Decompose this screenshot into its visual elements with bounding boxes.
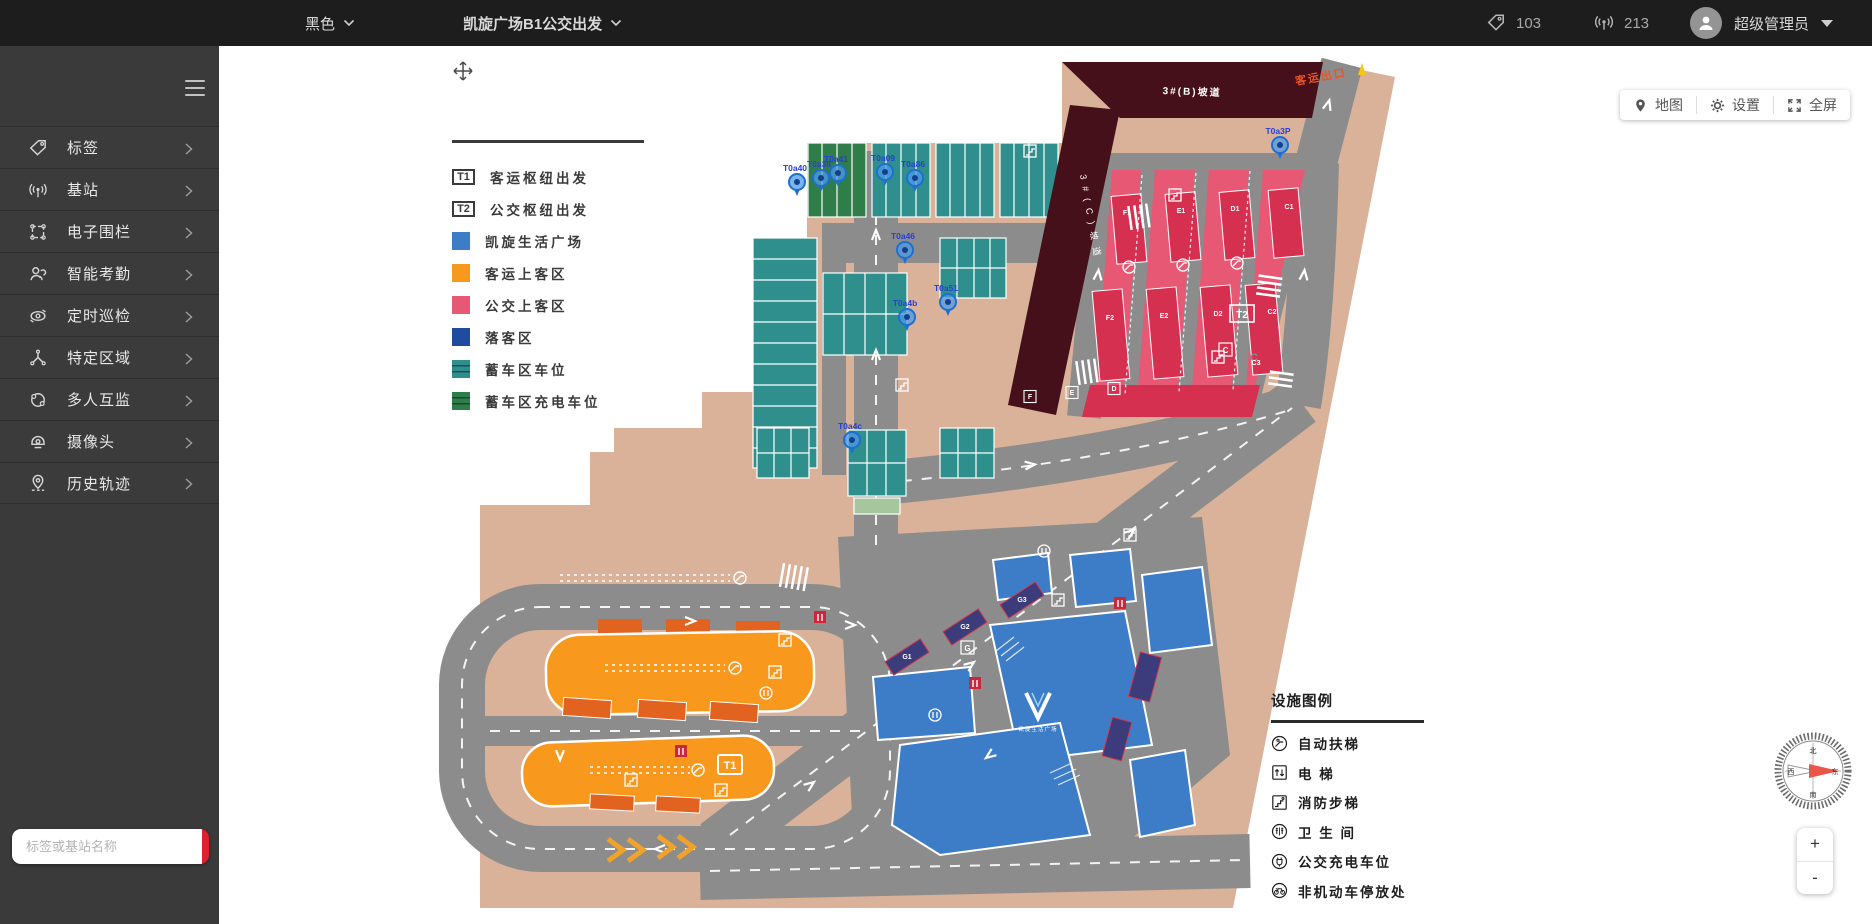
sidebar-item-label: 电子围栏 [67, 221, 131, 242]
facility-label: 卫 生 间 [1298, 822, 1356, 842]
legend-item: 落客区 [452, 321, 662, 353]
bay-label: F2 [1106, 315, 1114, 322]
legend-swatch [452, 232, 470, 250]
map-button[interactable]: 地图 [1620, 96, 1696, 114]
attendance-icon [28, 264, 48, 284]
toilet-icon [1271, 823, 1288, 840]
sidebar-item-label: 特定区域 [67, 347, 131, 368]
user-menu[interactable]: 超级管理员 [1690, 0, 1833, 46]
chevron-right-icon [185, 142, 193, 154]
compass: 北 南 东 西 [1773, 731, 1853, 811]
facility-label: 非机动车停放处 [1298, 881, 1407, 901]
legend-swatch [452, 360, 470, 378]
zoom-in-button[interactable]: + [1797, 828, 1833, 862]
tag-pin-label: T0a86 [901, 159, 925, 169]
bay-label: E [1070, 390, 1075, 397]
chevron-right-icon [185, 477, 193, 489]
legend-swatch [452, 392, 470, 410]
chevron-right-icon [185, 226, 193, 238]
facility-legend-items: 自动扶梯电 梯消防步梯卫 生 间公交充电车位非机动车停放处 [1271, 729, 1424, 906]
bay-label: D2 [1214, 311, 1223, 318]
facility-item: 消防步梯 [1271, 788, 1424, 818]
bay-label: F [1028, 394, 1033, 401]
tag-pin-T0a40[interactable]: T0a40 [783, 163, 807, 196]
chevron-down-icon [343, 17, 355, 29]
chevron-right-icon [185, 352, 193, 364]
tag-icon [1486, 13, 1506, 33]
bay-label: G2 [960, 624, 969, 631]
compass-north-label: 北 [1810, 747, 1817, 755]
tag-pin-label: T0a46 [891, 231, 915, 241]
legend-swatch [452, 296, 470, 314]
map-legend: T1客运枢纽出发T2公交枢纽出发凯旋生活广场客运上客区公交上客区落客区蓄车区车位… [452, 140, 662, 417]
caret-down-icon [1821, 20, 1833, 27]
bay-label: C2 [1268, 309, 1277, 316]
legend-item: 公交上客区 [452, 289, 662, 321]
g-zone-label: G [964, 644, 970, 653]
facility-label: 自动扶梯 [1298, 733, 1360, 753]
facility-label: 公交充电车位 [1298, 851, 1391, 871]
facility-legend-title: 设施图例 [1271, 690, 1424, 711]
menu-toggle-icon[interactable] [185, 80, 205, 96]
sidebar-item-定时巡检[interactable]: 定时巡检 [0, 294, 219, 336]
elevator-icon [1271, 764, 1288, 781]
facility-item: 电 梯 [1271, 758, 1424, 788]
fullscreen-button[interactable]: 全屏 [1773, 96, 1850, 114]
compass-west-label: 西 [1788, 768, 1795, 776]
settings-button[interactable]: 设置 [1696, 96, 1773, 114]
history-icon [28, 473, 48, 493]
tag-count-indicator[interactable]: 103 [1486, 0, 1541, 46]
facility-item: 公交充电车位 [1271, 847, 1424, 877]
legend-item: 凯旋生活广场 [452, 225, 662, 257]
bay-label: E1 [1177, 208, 1186, 215]
avatar [1690, 7, 1722, 39]
legend-label: 客运上客区 [485, 263, 568, 283]
sidebar-item-label: 基站 [67, 179, 99, 200]
sidebar-item-电子围栏[interactable]: 电子围栏 [0, 210, 219, 252]
legend-label: 公交枢纽出发 [490, 199, 589, 219]
search-input[interactable] [12, 829, 202, 864]
user-name: 超级管理员 [1734, 13, 1809, 34]
fullscreen-button-label: 全屏 [1809, 95, 1837, 115]
station-count-indicator[interactable]: 213 [1594, 0, 1649, 46]
sidebar-item-特定区域[interactable]: 特定区域 [0, 336, 219, 378]
settings-button-label: 设置 [1732, 95, 1760, 115]
legend-key-box: T2 [452, 201, 475, 217]
bay-label: G1 [902, 654, 911, 661]
fence-icon [28, 222, 48, 242]
t2-zone-label: T2 [1236, 310, 1248, 321]
facility-item: 非机动车停放处 [1271, 876, 1424, 906]
sidebar-item-多人互监[interactable]: 多人互监 [0, 378, 219, 420]
tag-pin-label: T0a41 [824, 154, 848, 164]
map-legend-items: T1客运枢纽出发T2公交枢纽出发凯旋生活广场客运上客区公交上客区落客区蓄车区车位… [452, 161, 662, 417]
bus-charging-icon [1271, 853, 1288, 870]
tag-count: 103 [1516, 15, 1541, 32]
search-button[interactable] [202, 829, 209, 864]
person-icon [1696, 13, 1716, 33]
location-pin-icon [1633, 98, 1648, 113]
chevron-right-icon [185, 436, 193, 448]
bay-label: F1 [1123, 210, 1131, 217]
sidebar-item-label: 历史轨迹 [67, 473, 131, 494]
sidebar-item-label: 定时巡检 [67, 305, 131, 326]
sidebar-item-label: 摄像头 [67, 431, 115, 452]
compass-south-label: 南 [1810, 790, 1817, 799]
mutual-icon [28, 390, 48, 410]
zoom-out-button[interactable]: - [1797, 862, 1833, 895]
bay-label: C3 [1252, 360, 1261, 367]
patrol-icon [28, 306, 48, 326]
legend-swatch [452, 264, 470, 282]
tag-pin-label: T0a09 [871, 153, 895, 163]
bay-label: G3 [1017, 597, 1026, 604]
sidebar-item-智能考勤[interactable]: 智能考勤 [0, 252, 219, 294]
legend-label: 蓄车区车位 [485, 359, 568, 379]
facility-label: 电 梯 [1298, 763, 1335, 783]
sidebar: 标签基站电子围栏智能考勤定时巡检特定区域多人互监摄像头历史轨迹 [0, 46, 219, 924]
bay-label: D1 [1231, 206, 1240, 213]
fullscreen-icon [1787, 98, 1802, 113]
map-title-select[interactable]: 凯旋广场B1公交出发 [463, 0, 622, 46]
chevron-right-icon [185, 394, 193, 406]
sidebar-item-历史轨迹[interactable]: 历史轨迹 [0, 462, 219, 504]
sidebar-item-基站[interactable]: 基站 [0, 168, 219, 210]
sidebar-item-label: 标签 [67, 137, 99, 158]
legend-item: T1客运枢纽出发 [452, 161, 662, 193]
legend-label: 客运枢纽出发 [490, 167, 589, 187]
sidebar-item-label: 多人互监 [67, 389, 131, 410]
facility-legend: 设施图例 自动扶梯电 梯消防步梯卫 生 间公交充电车位非机动车停放处 [1271, 690, 1424, 906]
legend-rule [452, 140, 644, 143]
bicycle-parking-icon [1271, 882, 1288, 899]
theme-select[interactable]: 黑色 [305, 0, 355, 46]
tag-icon [28, 138, 48, 158]
tag-pin-label: T0a40 [783, 163, 807, 173]
legend-item: 蓄车区车位 [452, 353, 662, 385]
sidebar-item-label: 智能考勤 [67, 263, 131, 284]
sidebar-search [12, 829, 209, 864]
app-window: 黑色 凯旋广场B1公交出发 103 213 超级管理员 标签基站电子围栏智能考勤… [0, 0, 1872, 924]
chevron-right-icon [185, 268, 193, 280]
map-toolbar: 地图 设置 全屏 [1620, 90, 1850, 120]
legend-key-box: T1 [452, 169, 475, 185]
station-count: 213 [1624, 15, 1649, 32]
area-icon [28, 348, 48, 368]
zoom-control: + - [1797, 828, 1833, 894]
antenna-icon [1594, 13, 1614, 33]
tag-pin-label: T0a3P [1265, 126, 1290, 136]
legend-label: 公交上客区 [485, 295, 568, 315]
fire-stairs-icon [1271, 794, 1288, 811]
bay-label: C1 [1285, 204, 1294, 211]
chevron-right-icon [185, 310, 193, 322]
tag-pin-label: T0a4c [838, 421, 862, 431]
sidebar-item-摄像头[interactable]: 摄像头 [0, 420, 219, 462]
legend-item: 客运上客区 [452, 257, 662, 289]
bay-label: E2 [1160, 313, 1169, 320]
t1-zone-label: T1 [724, 760, 737, 772]
map-button-label: 地图 [1655, 95, 1683, 115]
plaza-caption: 凯旋生活广场 [1018, 725, 1057, 733]
facility-label: 消防步梯 [1298, 792, 1360, 812]
station-icon [28, 180, 48, 200]
sidebar-item-标签[interactable]: 标签 [0, 126, 219, 168]
camera-icon [28, 432, 48, 452]
top-bar: 黑色 凯旋广场B1公交出发 103 213 超级管理员 [0, 0, 1872, 46]
legend-label: 蓄车区充电车位 [485, 391, 601, 411]
map-title: 凯旋广场B1公交出发 [463, 13, 602, 34]
tag-pin-label: T0a4b [893, 298, 918, 308]
facility-item: 自动扶梯 [1271, 729, 1424, 759]
escalator-icon [1271, 735, 1288, 752]
sidebar-menu: 标签基站电子围栏智能考勤定时巡检特定区域多人互监摄像头历史轨迹 [0, 126, 219, 504]
legend-label: 落客区 [485, 327, 535, 347]
bay-label: D [1111, 386, 1116, 393]
facility-item: 卫 生 间 [1271, 817, 1424, 847]
chevron-right-icon [185, 184, 193, 196]
legend-item: T2公交枢纽出发 [452, 193, 662, 225]
facility-legend-rule [1271, 720, 1424, 723]
move-cursor-icon [452, 60, 474, 87]
legend-item: 蓄车区充电车位 [452, 385, 662, 417]
compass-east-label: 东 [1832, 767, 1839, 776]
tag-pin-label: T0a51 [934, 283, 958, 293]
search-icon [208, 838, 209, 855]
theme-label: 黑色 [305, 13, 335, 34]
legend-swatch [452, 328, 470, 346]
legend-label: 凯旋生活广场 [485, 231, 584, 251]
gear-icon [1710, 98, 1725, 113]
chevron-down-icon [610, 17, 622, 29]
